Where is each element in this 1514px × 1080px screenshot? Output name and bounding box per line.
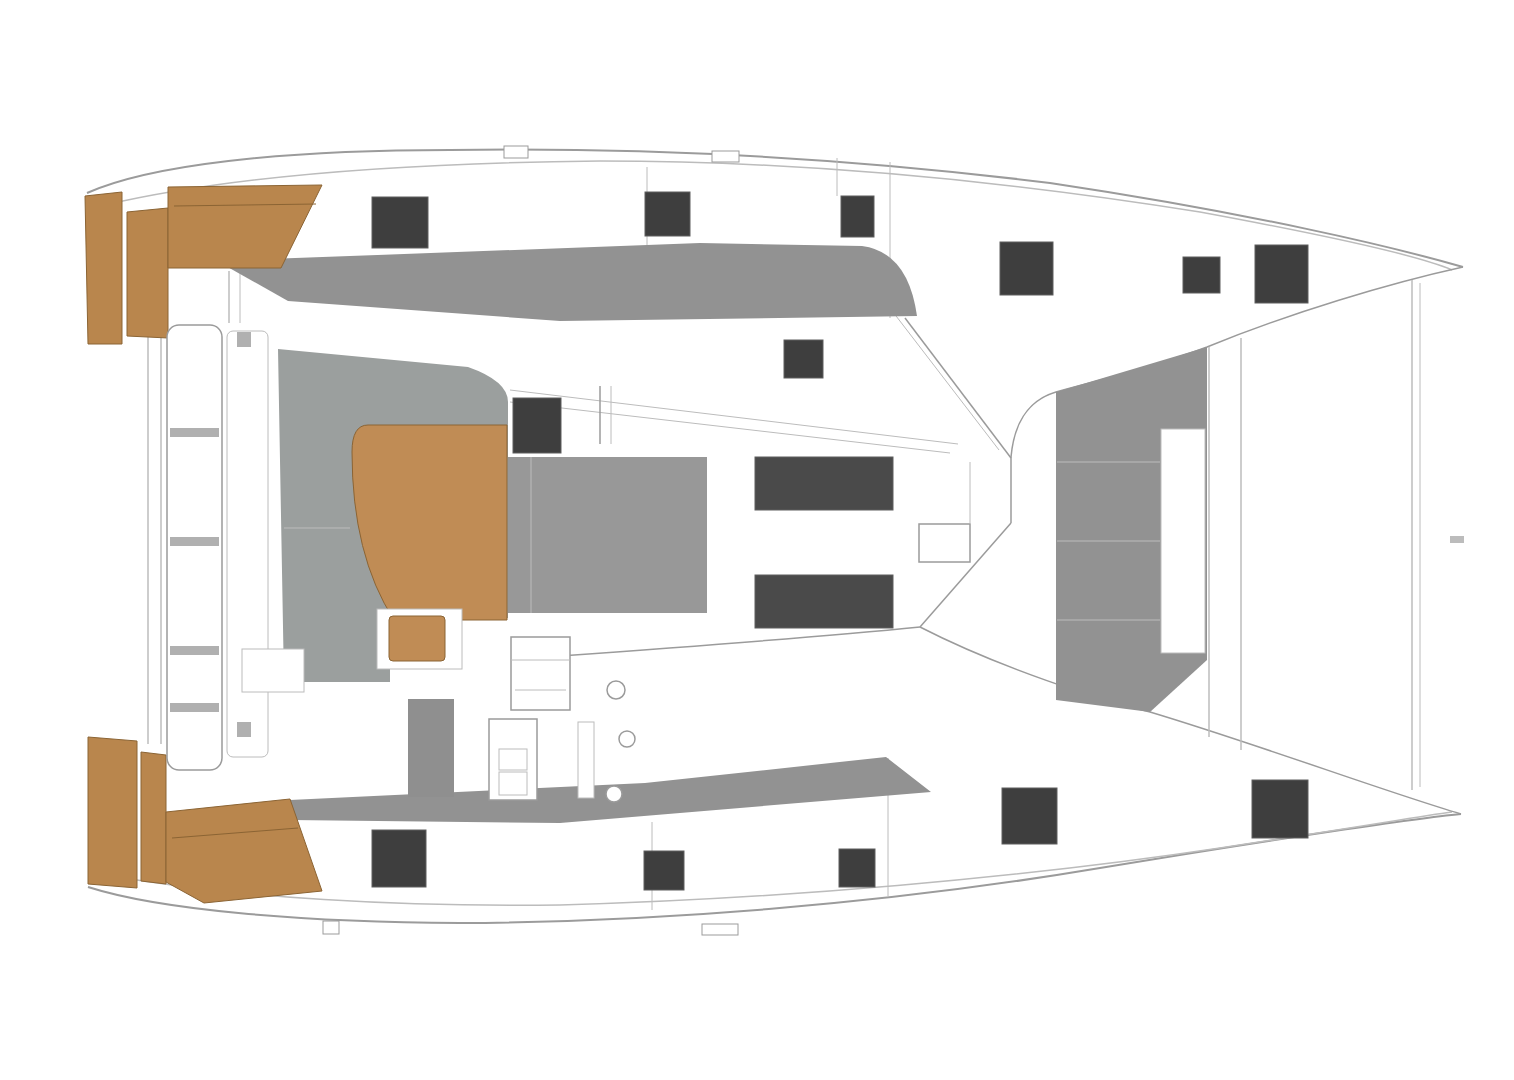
port-swim-platform-deck bbox=[168, 185, 322, 268]
side-deck-nonskid-port bbox=[217, 243, 917, 321]
backrest-fitting-bottom bbox=[237, 722, 251, 737]
helm-side-locker bbox=[578, 722, 594, 798]
helm-module bbox=[511, 637, 570, 710]
deck-hatch-stbd-mid-1 bbox=[644, 851, 684, 890]
deck-hatch-stbd-bow bbox=[1252, 780, 1308, 838]
foredeck-panel-inset bbox=[1161, 429, 1205, 653]
aft-cockpit-bench-backrest bbox=[227, 331, 268, 757]
coachroof-diagonal-line-2 bbox=[510, 402, 950, 453]
coachroof-hatch-mast bbox=[513, 398, 561, 453]
bench-divider-3 bbox=[170, 646, 219, 655]
helm-console bbox=[489, 719, 537, 800]
deck-hatch-port-aft bbox=[372, 197, 428, 248]
coachroof-diagonal-line-1 bbox=[510, 390, 958, 444]
cockpit-storage-box bbox=[242, 649, 304, 692]
bench-divider-1 bbox=[170, 428, 219, 437]
coachroof-bottom-edge-line bbox=[560, 627, 920, 656]
winch-1 bbox=[607, 681, 625, 699]
centerline-tick bbox=[1450, 536, 1464, 543]
deck-hatch-stbd-fwd bbox=[1002, 788, 1057, 844]
windshield-top-edge-line-2 bbox=[893, 312, 999, 450]
coachroof-hatch-small bbox=[784, 340, 823, 378]
windshield-top-edge-line bbox=[905, 318, 1011, 458]
boat-deck-plan bbox=[0, 0, 1514, 1080]
deck-hatch-port-fwd-small bbox=[1183, 257, 1220, 293]
deck-hatch-port-mid-1 bbox=[645, 192, 690, 236]
coachroof-window-2 bbox=[755, 575, 893, 628]
port-rail-fitting bbox=[504, 146, 528, 158]
backrest-fitting-top bbox=[237, 332, 251, 347]
starboard-swim-platform-step-2 bbox=[141, 752, 166, 884]
winch-2 bbox=[619, 731, 635, 747]
deck-hatch-port-mid-2 bbox=[841, 196, 874, 237]
helm-seat bbox=[408, 699, 454, 797]
helm-stool-cushion bbox=[389, 616, 445, 661]
deck-hatch-stbd-aft bbox=[372, 830, 426, 887]
winch-3 bbox=[606, 786, 622, 802]
deck-hatch-stbd-mid-2 bbox=[839, 849, 875, 887]
starboard-rail-fitting bbox=[702, 924, 738, 935]
deck-plan-svg bbox=[0, 0, 1514, 1080]
bench-divider-2 bbox=[170, 537, 219, 546]
coachroof-window-1 bbox=[755, 457, 893, 510]
port-rail-fitting-2 bbox=[712, 151, 739, 162]
deck-hatch-port-fwd-1 bbox=[1000, 242, 1053, 295]
deck-hatch-port-bow bbox=[1255, 245, 1308, 303]
port-swim-platform-step-2 bbox=[127, 208, 168, 338]
bench-divider-4 bbox=[170, 703, 219, 712]
coachroof-sunpad-area bbox=[508, 457, 707, 613]
walkway-locker-box bbox=[919, 524, 970, 562]
starboard-swim-platform-step bbox=[88, 737, 137, 888]
port-swim-platform-step bbox=[85, 192, 122, 344]
starboard-rail-fitting-2 bbox=[323, 921, 339, 934]
